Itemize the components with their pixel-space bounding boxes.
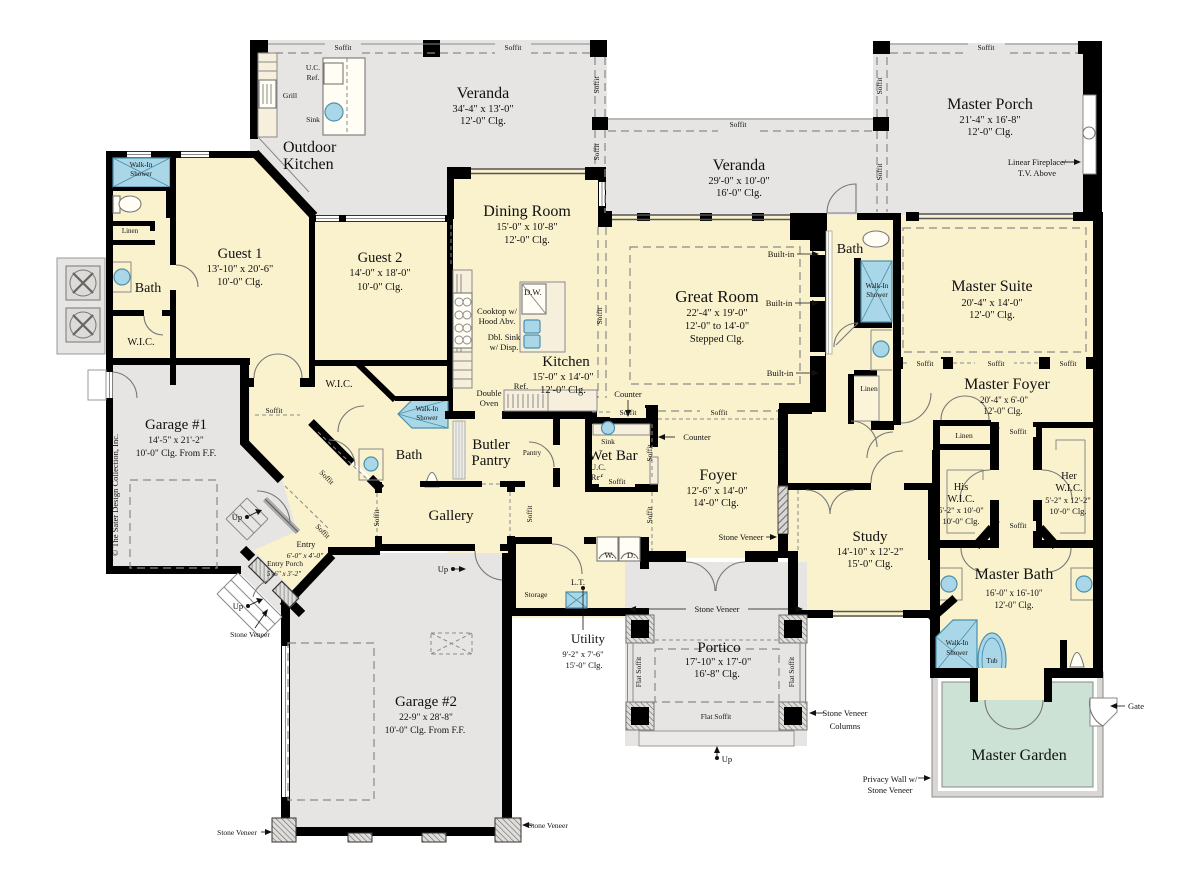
svg-text:W.I.C.: W.I.C.: [947, 494, 974, 505]
svg-text:Bath: Bath: [396, 448, 422, 463]
svg-text:5'-2" x 10'-0": 5'-2" x 10'-0": [938, 505, 983, 515]
svg-text:Soffit: Soffit: [978, 43, 996, 52]
svg-text:Sink: Sink: [306, 115, 320, 124]
svg-text:12'-0" Clg.: 12'-0" Clg.: [969, 310, 1015, 321]
svg-text:15'-0" x 14'-0": 15'-0" x 14'-0": [532, 372, 593, 383]
svg-text:Bath: Bath: [837, 242, 863, 257]
svg-text:Soffit: Soffit: [1010, 521, 1028, 530]
svg-text:Guest 2: Guest 2: [358, 250, 403, 266]
svg-text:Soffit: Soffit: [1010, 427, 1028, 436]
svg-text:Soffit: Soffit: [1060, 359, 1078, 368]
svg-text:12'-0" Clg.: 12'-0" Clg.: [967, 127, 1013, 138]
svg-text:12'-6" x 14'-0": 12'-6" x 14'-0": [686, 486, 747, 497]
svg-text:Linen: Linen: [955, 431, 973, 440]
svg-text:Hood Abv.: Hood Abv.: [479, 316, 516, 326]
svg-text:Soffit: Soffit: [711, 408, 729, 417]
svg-text:Grill: Grill: [283, 91, 297, 100]
svg-text:Master Porch: Master Porch: [947, 96, 1033, 113]
svg-text:Entry: Entry: [297, 539, 317, 549]
svg-text:D.: D.: [627, 550, 635, 560]
svg-text:Soffit: Soffit: [609, 477, 627, 486]
svg-text:Linear Fireplace/: Linear Fireplace/: [1008, 157, 1067, 167]
svg-text:Great Room: Great Room: [675, 287, 759, 306]
svg-text:Counter: Counter: [614, 389, 642, 399]
svg-text:Master Bath: Master Bath: [975, 566, 1054, 583]
svg-text:22-9" x 28'-8": 22-9" x 28'-8": [399, 713, 453, 723]
svg-text:Flat Soffit: Flat Soffit: [634, 656, 643, 687]
svg-text:Stone Veneer: Stone Veneer: [528, 821, 568, 830]
svg-text:15'-0" Clg.: 15'-0" Clg.: [847, 559, 893, 570]
svg-text:Walk-In: Walk-In: [946, 639, 969, 647]
svg-text:9'-2" x 7'-6": 9'-2" x 7'-6": [562, 649, 603, 659]
svg-text:Walk-In: Walk-In: [130, 161, 153, 169]
svg-text:Soffit: Soffit: [917, 359, 935, 368]
svg-text:Shower: Shower: [130, 170, 152, 178]
svg-text:20'-4" x 14'-0": 20'-4" x 14'-0": [961, 298, 1022, 309]
svg-text:Soffit: Soffit: [595, 307, 604, 325]
svg-text:14'-0" x 18'-0": 14'-0" x 18'-0": [349, 268, 410, 279]
svg-text:Columns: Columns: [830, 721, 861, 731]
svg-text:15'-0" Clg.: 15'-0" Clg.: [565, 660, 602, 670]
svg-text:10'-0" Clg.: 10'-0" Clg.: [217, 277, 263, 288]
svg-text:Gate: Gate: [1128, 701, 1144, 711]
svg-text:Shower: Shower: [866, 291, 888, 299]
svg-text:W.I.C.: W.I.C.: [127, 337, 154, 348]
svg-text:Double: Double: [476, 388, 501, 398]
svg-text:Stone Veneer: Stone Veneer: [217, 828, 257, 837]
svg-text:10'-0" Clg. From F.F.: 10'-0" Clg. From F.F.: [136, 449, 217, 459]
svg-text:Stepped Clg.: Stepped Clg.: [690, 334, 744, 345]
svg-text:Soffit: Soffit: [645, 506, 654, 524]
svg-text:His: His: [954, 482, 969, 493]
svg-text:L.T.: L.T.: [571, 577, 585, 587]
svg-text:13'-10" x 20'-6": 13'-10" x 20'-6": [207, 264, 274, 275]
svg-text:22'-4" x 19'-0": 22'-4" x 19'-0": [686, 308, 747, 319]
svg-text:Entry Porch: Entry Porch: [267, 559, 303, 568]
svg-text:12'-0" to 14'-0": 12'-0" to 14'-0": [685, 321, 749, 332]
svg-text:10'-0" Clg.: 10'-0" Clg.: [942, 516, 979, 526]
svg-text:Pantry: Pantry: [523, 449, 542, 457]
svg-text:10'-0" Clg. From F.F.: 10'-0" Clg. From F.F.: [385, 726, 466, 736]
svg-text:16'-0" Clg.: 16'-0" Clg.: [716, 188, 762, 199]
svg-text:Linen: Linen: [122, 227, 139, 235]
svg-text:Built-in: Built-in: [768, 249, 795, 259]
svg-text:Soffit: Soffit: [730, 120, 748, 129]
svg-text:Shower: Shower: [946, 649, 968, 657]
svg-text:Butler: Butler: [472, 437, 510, 453]
svg-text:Storage: Storage: [525, 590, 549, 599]
svg-text:Linen: Linen: [860, 384, 878, 393]
svg-text:Veranda: Veranda: [713, 157, 765, 174]
svg-text:Study: Study: [852, 529, 888, 545]
svg-text:Built-in: Built-in: [767, 368, 794, 378]
svg-text:12'-0" Clg.: 12'-0" Clg.: [540, 385, 586, 396]
svg-text:Up: Up: [722, 754, 732, 764]
svg-text:Pantry: Pantry: [471, 453, 511, 469]
svg-text:10'-0" Clg.: 10'-0" Clg.: [357, 282, 403, 293]
svg-text:12'-0" Clg.: 12'-0" Clg.: [983, 406, 1022, 416]
svg-text:21'-4" x 16'-8": 21'-4" x 16'-8": [959, 115, 1020, 126]
svg-text:Flat Soffit: Flat Soffit: [787, 656, 796, 687]
svg-text:w/ Disp.: w/ Disp.: [490, 342, 519, 352]
svg-text:Up: Up: [232, 512, 242, 522]
svg-text:Soffit: Soffit: [777, 447, 786, 465]
svg-text:Veranda: Veranda: [457, 85, 509, 102]
svg-text:Utility: Utility: [571, 631, 605, 646]
svg-text:Ref.: Ref.: [307, 73, 320, 82]
svg-text:Soffit: Soffit: [592, 76, 601, 94]
svg-text:Garage #2: Garage #2: [395, 694, 457, 710]
svg-text:Soffit: Soffit: [592, 143, 601, 161]
svg-text:Master Suite: Master Suite: [951, 278, 1032, 295]
svg-text:W.I.C.: W.I.C.: [1055, 483, 1082, 494]
svg-text:Outdoor: Outdoor: [283, 139, 337, 156]
svg-text:14'-10" x 12'-2": 14'-10" x 12'-2": [837, 547, 904, 558]
svg-text:Portico: Portico: [697, 640, 740, 656]
svg-text:5'-2" x 12'-2": 5'-2" x 12'-2": [1045, 495, 1090, 505]
svg-text:W.I.C.: W.I.C.: [325, 379, 352, 390]
svg-text:10'-0" Clg.: 10'-0" Clg.: [1049, 506, 1086, 516]
svg-text:Soffit: Soffit: [988, 359, 1006, 368]
svg-text:Foyer: Foyer: [699, 467, 737, 484]
svg-text:Shower: Shower: [416, 414, 438, 422]
svg-text:Oven: Oven: [480, 398, 499, 408]
svg-text:Counter: Counter: [683, 432, 711, 442]
svg-text:Walk-In: Walk-In: [866, 282, 889, 290]
svg-text:15'-0" x 10'-8": 15'-0" x 10'-8": [496, 222, 557, 233]
svg-text:Stone Veneer: Stone Veneer: [695, 604, 740, 614]
svg-text:Stone Veneer: Stone Veneer: [823, 708, 868, 718]
svg-text:Walk-In: Walk-In: [416, 405, 439, 413]
svg-text:D.W.: D.W.: [524, 287, 542, 297]
svg-text:17'-10" x 17'-0": 17'-10" x 17'-0": [685, 657, 752, 668]
svg-text:Soffit: Soffit: [505, 43, 523, 52]
svg-text:U.C.: U.C.: [590, 462, 606, 472]
svg-text:Flat Soffit: Flat Soffit: [701, 712, 732, 721]
svg-text:Privacy Wall w/: Privacy Wall w/: [863, 774, 918, 784]
svg-text:14'-5" x 21'-2": 14'-5" x 21'-2": [148, 436, 204, 446]
svg-text:Gallery: Gallery: [429, 508, 474, 524]
svg-text:Soffit: Soffit: [266, 406, 284, 415]
svg-text:16'-0" x 16'-10": 16'-0" x 16'-10": [985, 588, 1042, 598]
svg-text:Built-in: Built-in: [766, 298, 793, 308]
svg-text:Soffit: Soffit: [645, 444, 654, 462]
svg-text:Stone Veneer: Stone Veneer: [230, 630, 270, 639]
svg-text:Her: Her: [1061, 471, 1077, 482]
svg-text:Soffit: Soffit: [875, 163, 884, 181]
svg-text:Soffit: Soffit: [875, 77, 884, 95]
svg-text:Bath: Bath: [135, 281, 161, 296]
svg-text:Guest 1: Guest 1: [218, 246, 263, 262]
svg-text:5'-6" x 3'-2": 5'-6" x 3'-2": [267, 570, 301, 578]
svg-text:T.V. Above: T.V. Above: [1018, 168, 1056, 178]
svg-text:W.: W.: [604, 550, 613, 560]
svg-text:16'-8" Clg.: 16'-8" Clg.: [694, 669, 740, 680]
svg-text:Up: Up: [233, 601, 243, 611]
svg-text:Garage #1: Garage #1: [145, 417, 207, 433]
svg-text:Master Foyer: Master Foyer: [964, 376, 1050, 393]
svg-text:Up: Up: [438, 564, 448, 574]
svg-text:20'-4" x 6'-0": 20'-4" x 6'-0": [980, 395, 1028, 405]
svg-text:29'-0" x 10'-0": 29'-0" x 10'-0": [708, 176, 769, 187]
svg-text:Kitchen: Kitchen: [283, 156, 334, 173]
svg-text:Dining Room: Dining Room: [483, 203, 571, 220]
svg-text:Master Garden: Master Garden: [971, 747, 1067, 764]
svg-text:14'-0" Clg.: 14'-0" Clg.: [693, 498, 739, 509]
svg-text:12'-0" Clg.: 12'-0" Clg.: [460, 116, 506, 127]
svg-text:34'-4" x 13'-0": 34'-4" x 13'-0": [452, 104, 513, 115]
svg-text:Kitchen: Kitchen: [542, 354, 590, 370]
svg-text:Soffit: Soffit: [525, 505, 534, 523]
svg-text:Cooktop w/: Cooktop w/: [477, 306, 518, 316]
svg-text:© The Sater Design Collection,: © The Sater Design Collection, Inc.: [110, 434, 120, 556]
svg-text:Soffit: Soffit: [335, 43, 353, 52]
svg-text:Soffit: Soffit: [372, 509, 381, 527]
svg-text:Stone Veneer: Stone Veneer: [868, 785, 913, 795]
svg-text:Dbl. Sink: Dbl. Sink: [488, 332, 521, 342]
svg-text:12'-0" Clg.: 12'-0" Clg.: [994, 600, 1033, 610]
svg-text:Tub: Tub: [986, 657, 998, 665]
svg-text:Stone Veneer: Stone Veneer: [719, 532, 764, 542]
svg-text:Ref.: Ref.: [514, 381, 528, 391]
svg-text:Sink: Sink: [601, 437, 615, 446]
svg-text:12'-0" Clg.: 12'-0" Clg.: [504, 235, 550, 246]
svg-text:U.C.: U.C.: [306, 63, 320, 72]
